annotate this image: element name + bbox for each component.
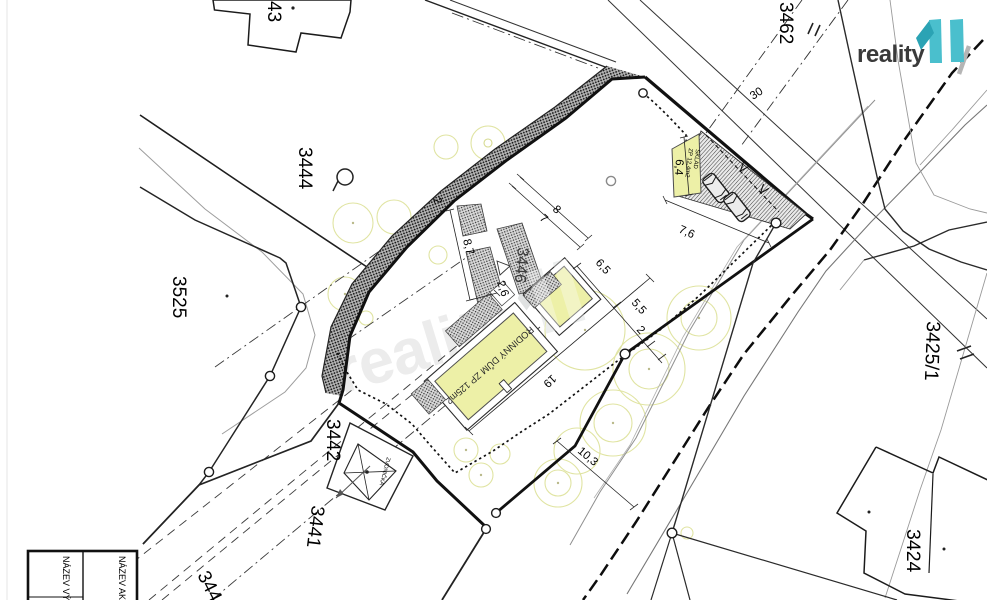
- svg-text:6,4: 6,4: [672, 159, 685, 176]
- svg-text:3442: 3442: [322, 419, 343, 461]
- svg-text:NÁZEV VÝKRESU: NÁZEV VÝKRESU: [61, 556, 71, 600]
- svg-text:NÁZEV AKCE: NÁZEV AKCE: [117, 556, 127, 600]
- svg-text:43: 43: [263, 1, 284, 22]
- svg-text:reality: reality: [857, 41, 925, 68]
- svg-text:3424: 3424: [902, 529, 924, 573]
- svg-text:3462: 3462: [775, 2, 796, 44]
- svg-text:3525: 3525: [168, 276, 189, 318]
- svg-text:3444: 3444: [294, 147, 315, 190]
- svg-text:3446: 3446: [511, 247, 531, 284]
- svg-text:3425/1: 3425/1: [920, 321, 944, 381]
